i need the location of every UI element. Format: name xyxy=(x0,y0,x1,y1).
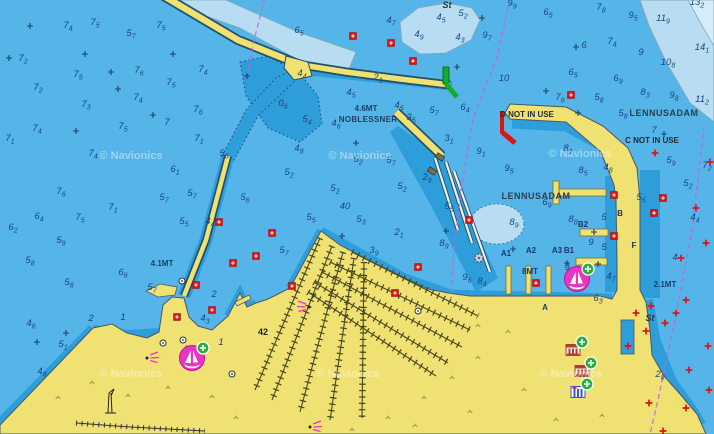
depth-sounding: 4 xyxy=(672,252,677,263)
depth-sounding: 1 xyxy=(218,337,223,348)
map-label: LENNUSADAM xyxy=(630,108,699,118)
map-label: A1 xyxy=(501,249,512,258)
hazard-mark-icon xyxy=(289,283,296,290)
map-label: 2.1MT xyxy=(654,280,677,289)
map-label: St xyxy=(443,0,453,10)
map-label: NOBLESSNER xyxy=(339,115,398,124)
map-label: 4.1MT xyxy=(151,259,174,268)
hazard-mark-icon xyxy=(466,217,473,224)
map-label: F xyxy=(632,241,637,250)
depth-sounding: 2 xyxy=(87,313,94,324)
map-label: LENNUSADAM xyxy=(502,191,571,201)
map-label: B xyxy=(617,209,623,218)
add-poi-badge-icon[interactable] xyxy=(582,263,594,275)
hazard-mark-icon xyxy=(350,33,357,40)
depth-sounding: 5 xyxy=(601,242,607,253)
depth-sounding: 5 xyxy=(601,212,607,223)
watermark: © Navionics xyxy=(548,148,611,160)
map-label: A3 xyxy=(552,246,563,255)
map-label: 8MT xyxy=(522,267,538,276)
minor-light-icon xyxy=(160,340,166,346)
watermark: © Navionics xyxy=(328,150,391,162)
hazard-mark-icon xyxy=(533,280,540,287)
hazard-mark-icon xyxy=(410,58,417,65)
watermark: © Navionics xyxy=(539,368,602,380)
hazard-mark-icon xyxy=(209,307,216,314)
nautical-chart-canvas[interactable]: 7475577572757674727573747674757717165475… xyxy=(0,0,714,434)
hazard-mark-icon xyxy=(415,264,422,271)
map-label: A2 xyxy=(526,246,537,255)
hazard-mark-icon xyxy=(174,314,181,321)
watermark: © Navionics xyxy=(316,368,379,380)
depth-sounding: 7 xyxy=(651,125,657,136)
hazard-mark-icon xyxy=(568,92,575,99)
hazard-mark-icon xyxy=(193,282,200,289)
map-label: 42 xyxy=(258,327,268,337)
hazard-mark-icon xyxy=(253,253,260,260)
watermark: © Navionics xyxy=(99,368,162,380)
hazard-mark-icon xyxy=(230,260,237,267)
hazard-mark-icon xyxy=(269,230,276,237)
add-poi-badge-icon[interactable] xyxy=(197,342,209,354)
depth-sounding: 1 xyxy=(120,312,125,323)
minor-light-icon xyxy=(415,308,421,314)
watermark: © Navionics xyxy=(99,150,162,162)
hazard-mark-icon xyxy=(651,210,658,217)
hazard-mark-icon xyxy=(611,192,618,199)
hazard-mark-icon xyxy=(216,219,223,226)
map-label: D NOT IN USE xyxy=(500,110,554,119)
depth-sounding: 40 xyxy=(340,201,351,212)
hazard-mark-icon xyxy=(388,40,395,47)
depth-sounding: 9 xyxy=(638,47,644,58)
map-label: St xyxy=(646,313,656,323)
depth-sounding: 6 xyxy=(581,40,587,51)
hazard-mark-icon xyxy=(660,195,667,202)
minor-light-icon xyxy=(229,371,235,377)
hazard-mark-icon xyxy=(392,290,399,297)
depth-sounding: 2 xyxy=(210,289,217,300)
map-label: 4.6MT xyxy=(355,104,378,113)
map-label: B1 xyxy=(564,246,575,255)
depth-sounding: 9 xyxy=(588,237,594,248)
map-label: B2 xyxy=(578,220,589,229)
wreck-icon xyxy=(475,254,483,262)
map-label: C NOT IN USE xyxy=(625,136,679,145)
minor-light-icon xyxy=(179,278,185,284)
add-poi-badge-icon[interactable] xyxy=(576,336,588,348)
depth-sounding: 10 xyxy=(499,73,510,84)
map-label: A xyxy=(542,303,548,312)
hazard-mark-icon xyxy=(611,233,618,240)
minor-light-icon xyxy=(180,337,186,343)
depth-sounding: 7 xyxy=(164,117,170,128)
